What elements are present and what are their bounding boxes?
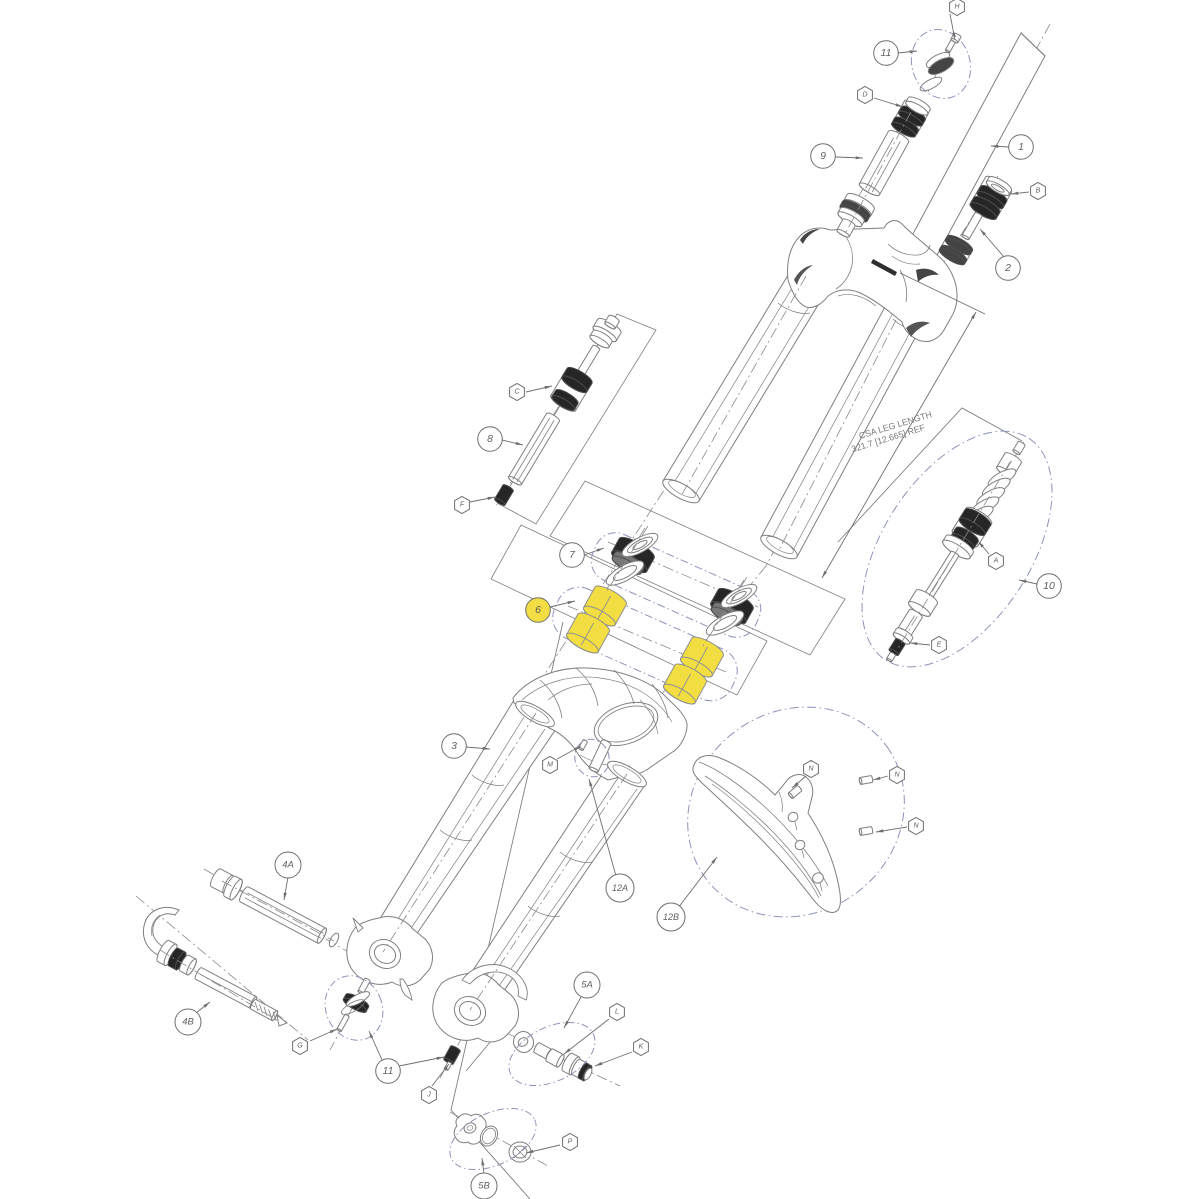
svg-text:8: 8 [487, 433, 493, 445]
svg-text:B: B [1036, 188, 1041, 195]
svg-text:J: J [426, 1092, 431, 1099]
svg-text:1: 1 [1018, 141, 1024, 153]
svg-text:L: L [615, 1009, 619, 1016]
svg-text:9: 9 [820, 150, 826, 162]
svg-text:D: D [862, 92, 867, 99]
svg-text:11: 11 [383, 1065, 394, 1077]
svg-text:E: E [937, 642, 942, 649]
svg-text:K: K [639, 1044, 644, 1051]
svg-text:4A: 4A [282, 860, 294, 871]
svg-text:11: 11 [881, 47, 892, 59]
svg-text:A: A [993, 558, 999, 565]
svg-text:5A: 5A [581, 980, 593, 991]
svg-text:F: F [460, 502, 465, 509]
svg-text:2: 2 [1004, 262, 1011, 274]
svg-text:6: 6 [535, 604, 541, 616]
svg-text:G: G [297, 1043, 303, 1050]
svg-text:3: 3 [451, 740, 457, 752]
svg-text:M: M [547, 762, 553, 769]
svg-text:10: 10 [1043, 580, 1055, 592]
svg-text:12B: 12B [663, 912, 679, 922]
svg-text:4B: 4B [182, 1017, 194, 1028]
svg-text:P: P [568, 1139, 573, 1146]
svg-text:5B: 5B [478, 1181, 490, 1192]
svg-text:12A: 12A [612, 883, 628, 893]
